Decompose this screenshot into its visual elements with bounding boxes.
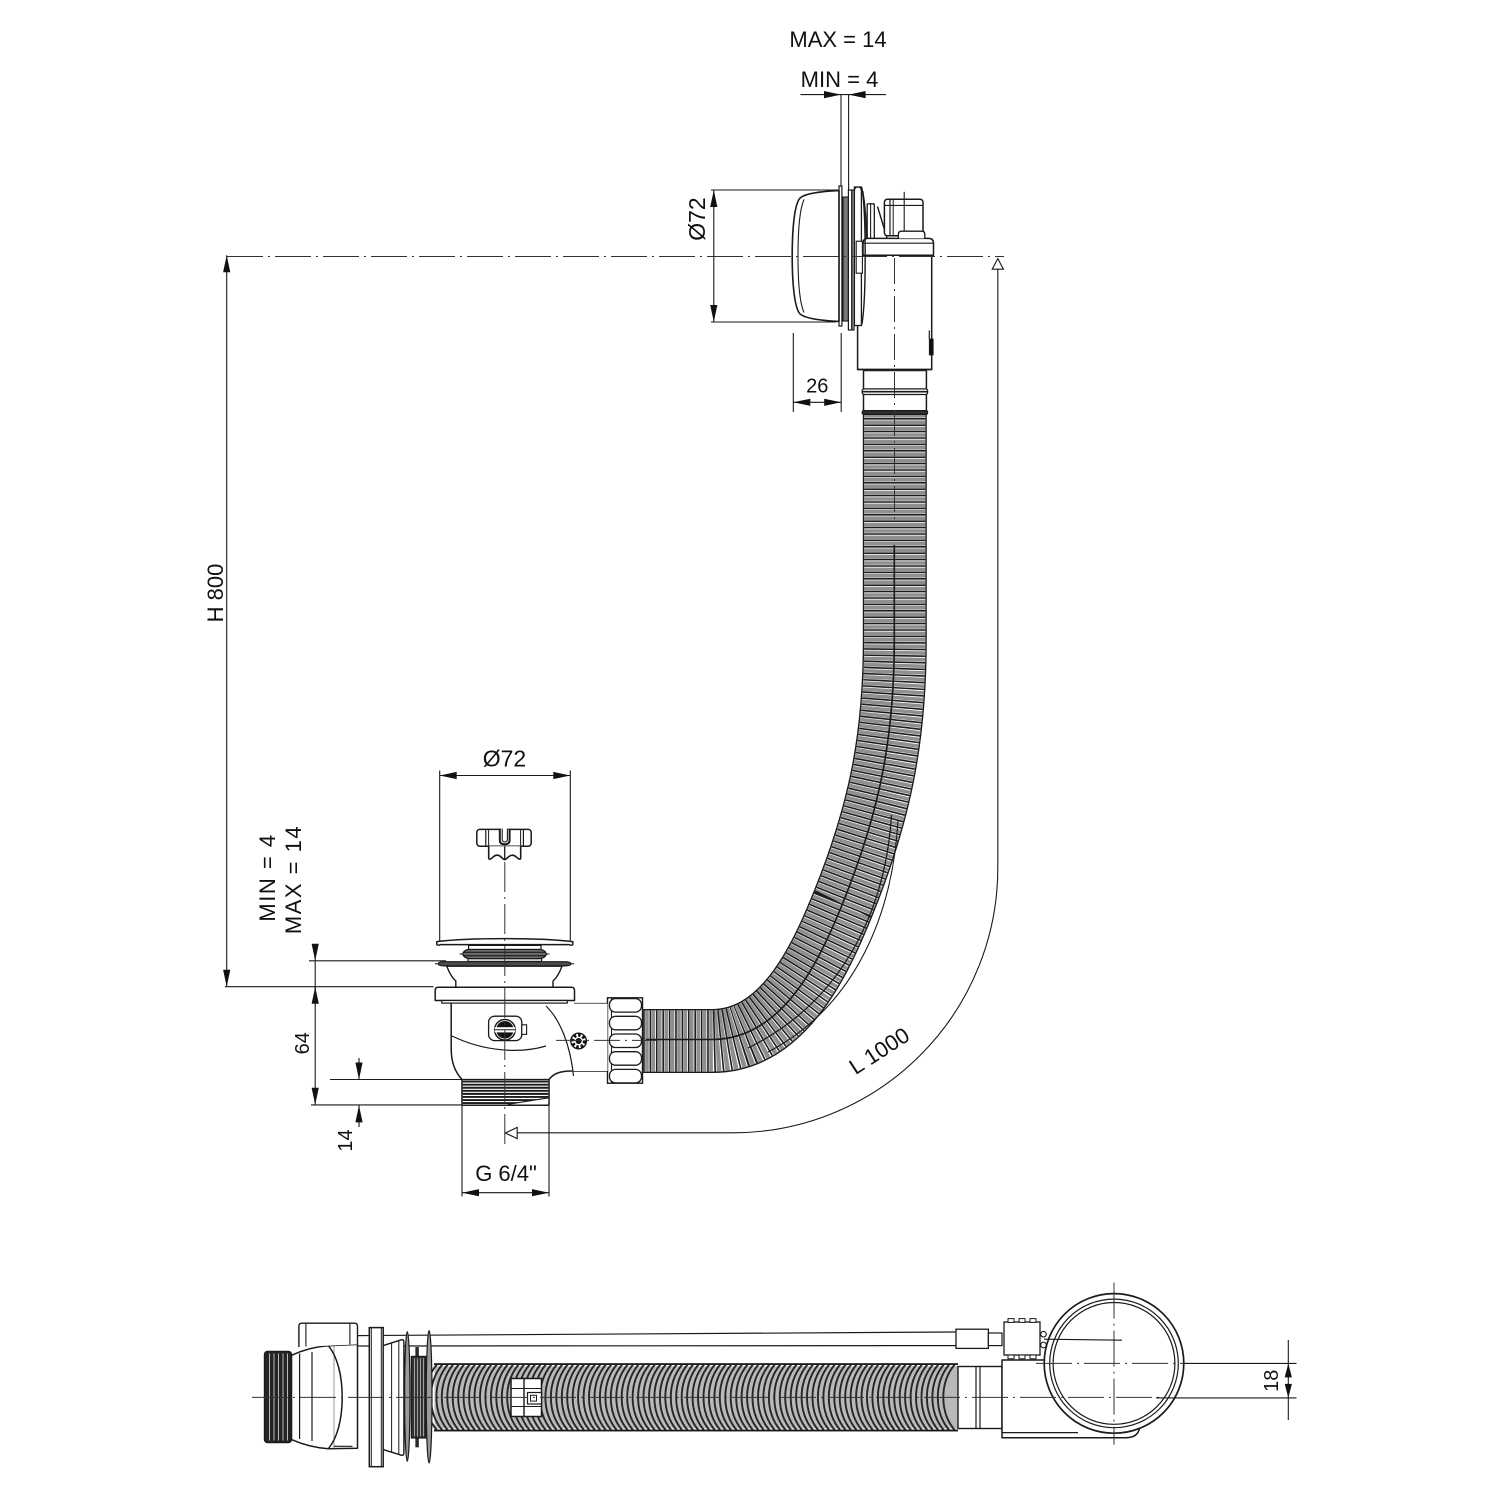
svg-text:MAX = 14: MAX = 14 (281, 825, 306, 934)
svg-text:Ø72: Ø72 (483, 746, 526, 772)
svg-text:G 6/4": G 6/4" (475, 1161, 537, 1186)
svg-text:MIN = 4: MIN = 4 (801, 67, 879, 92)
svg-text:14: 14 (335, 1129, 357, 1151)
svg-text:Ø72: Ø72 (684, 197, 710, 240)
svg-text:64: 64 (292, 1032, 314, 1054)
svg-text:MIN = 4: MIN = 4 (255, 833, 280, 921)
svg-text:26: 26 (806, 376, 828, 398)
svg-text:MAX = 14: MAX = 14 (789, 27, 886, 52)
svg-text:H 800: H 800 (203, 564, 228, 623)
svg-text:18: 18 (1261, 1370, 1283, 1392)
